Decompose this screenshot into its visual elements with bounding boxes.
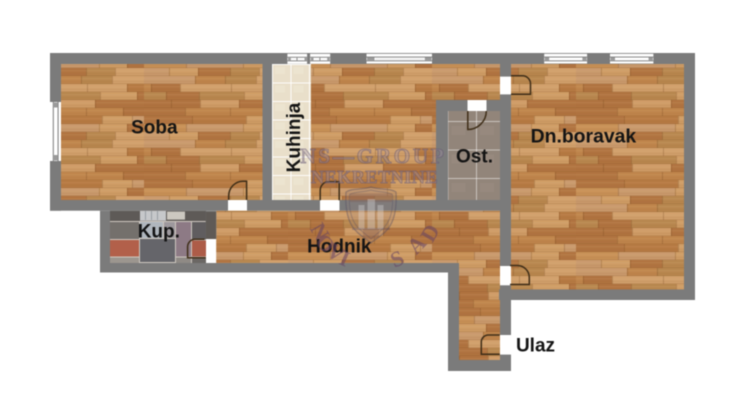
svg-text:NS—GROUP: NS—GROUP [300,144,446,168]
svg-text:Dn.boravak: Dn.boravak [531,126,637,148]
svg-text:Kup.: Kup. [138,222,180,243]
svg-text:Ost.: Ost. [456,147,493,168]
svg-text:Ulaz: Ulaz [516,335,555,356]
svg-text:Soba: Soba [131,118,178,139]
svg-text:NEKRETNINE: NEKRETNINE [311,167,438,187]
